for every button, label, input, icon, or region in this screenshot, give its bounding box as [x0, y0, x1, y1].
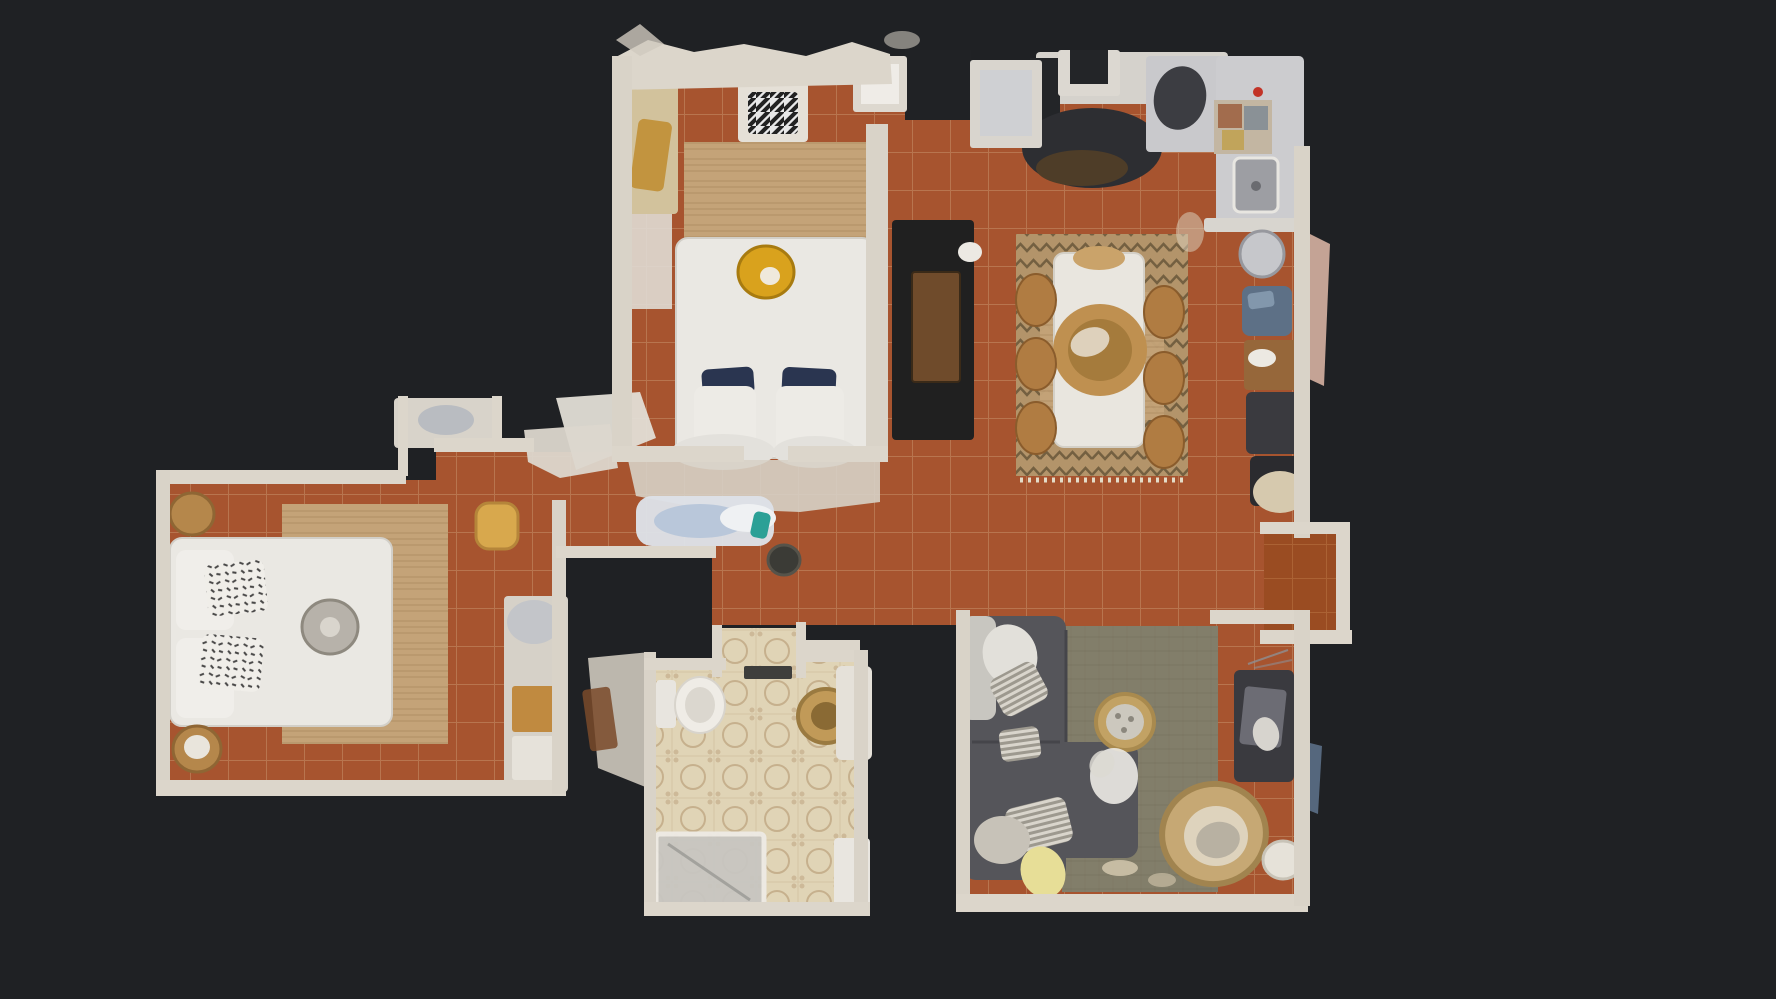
bath-wall-bottom [644, 902, 870, 916]
corridor-wall-bottom [556, 546, 716, 558]
coffee-table-dot-2 [1128, 716, 1134, 722]
living-wall-left [956, 610, 970, 910]
counter-end-band [1204, 218, 1306, 232]
bl-hat-center [320, 617, 340, 637]
floorplan-3d-scene[interactable] [0, 0, 1776, 999]
vestibule-wall-left [712, 625, 722, 677]
gold-hat-center [760, 267, 780, 285]
hall-wall-stub-left [398, 396, 408, 476]
dining-chair-right-3 [1144, 416, 1184, 468]
zebra-chair [748, 92, 798, 134]
corridor-wall-top-left [434, 438, 534, 452]
floor-cloth-1 [1102, 860, 1138, 876]
cooktop-niche-inner [1070, 50, 1108, 84]
corridor-stool [476, 503, 518, 549]
bath-wall-right [854, 650, 868, 914]
corridor-basket [768, 545, 800, 575]
toilet-seat [685, 687, 715, 723]
dining-chair-left-1 [1016, 274, 1056, 326]
coffee-table-dot-1 [1115, 713, 1121, 719]
scan-artifact-2 [884, 31, 920, 49]
living-wall-bottom [956, 894, 1308, 912]
firewood-niche [912, 272, 960, 382]
bedroom-left-wall-top [158, 470, 406, 484]
bedroom-top-wall-bottom-right [788, 446, 888, 462]
wood-cabinet [1244, 340, 1298, 390]
bl-basket-cloth [184, 735, 210, 759]
dollhouse-viewport[interactable] [0, 0, 1776, 999]
scan-artifact-3 [1176, 212, 1204, 252]
sink-drain [1251, 181, 1261, 191]
bl-cushion-bottom [198, 633, 264, 692]
bedroom-top-wall-left [612, 56, 632, 460]
sink-red-dot [1253, 87, 1263, 97]
dining-chair-right-2 [1144, 352, 1184, 404]
bedroom-top-wall-right [866, 124, 888, 462]
dining-chair-head [1073, 246, 1125, 270]
kitchen-door-gap [905, 50, 971, 120]
living-wall-right [1294, 610, 1310, 906]
bl-basket-top [170, 493, 214, 535]
vestibule-wall-right [796, 622, 806, 678]
toilet-tank [656, 680, 676, 728]
console-lamp [958, 242, 982, 262]
sofa-pillow-stripe-mid [998, 725, 1042, 762]
dining-chair-left-3 [1016, 402, 1056, 454]
coffee-table-dot-3 [1121, 727, 1127, 733]
window-alcove-mid-inner [980, 70, 1032, 136]
balcony-wall-right [1336, 522, 1350, 644]
bath-wall-left [644, 652, 656, 914]
sofa-pillow-boucle [974, 816, 1030, 864]
floor-cloth-2 [1148, 873, 1176, 887]
hall-wardrobe-mirror [418, 405, 474, 435]
backsplash-tile-1 [1218, 104, 1242, 128]
living-wall-top-right [1210, 610, 1304, 624]
wood-cabinet-items [1248, 349, 1276, 367]
metal-pot [1240, 231, 1284, 277]
backsplash-tile-2 [1244, 106, 1268, 130]
dining-chair-left-2 [1016, 338, 1056, 390]
dining-chair-right-1 [1144, 286, 1184, 338]
bedroom-left-wall-bottom [156, 780, 566, 796]
bedroom-top-wall-bottom-left [612, 446, 744, 462]
bedroom-left-wall-right [552, 500, 566, 794]
dark-furniture-1 [1246, 392, 1302, 454]
bath-wall-top-right [800, 640, 860, 662]
backsplash-tile-3 [1222, 130, 1244, 150]
corridor-join-floor [712, 540, 970, 625]
cooktop-pan [1036, 150, 1128, 186]
bl-cushion-top [203, 559, 268, 617]
bedroom-top-wall-patch [626, 214, 672, 309]
kitchen-wall-right [1294, 146, 1310, 538]
bath-doormat [744, 666, 792, 679]
coffee-table-top [1106, 704, 1144, 740]
bedroom-left-wall-left [156, 470, 170, 794]
